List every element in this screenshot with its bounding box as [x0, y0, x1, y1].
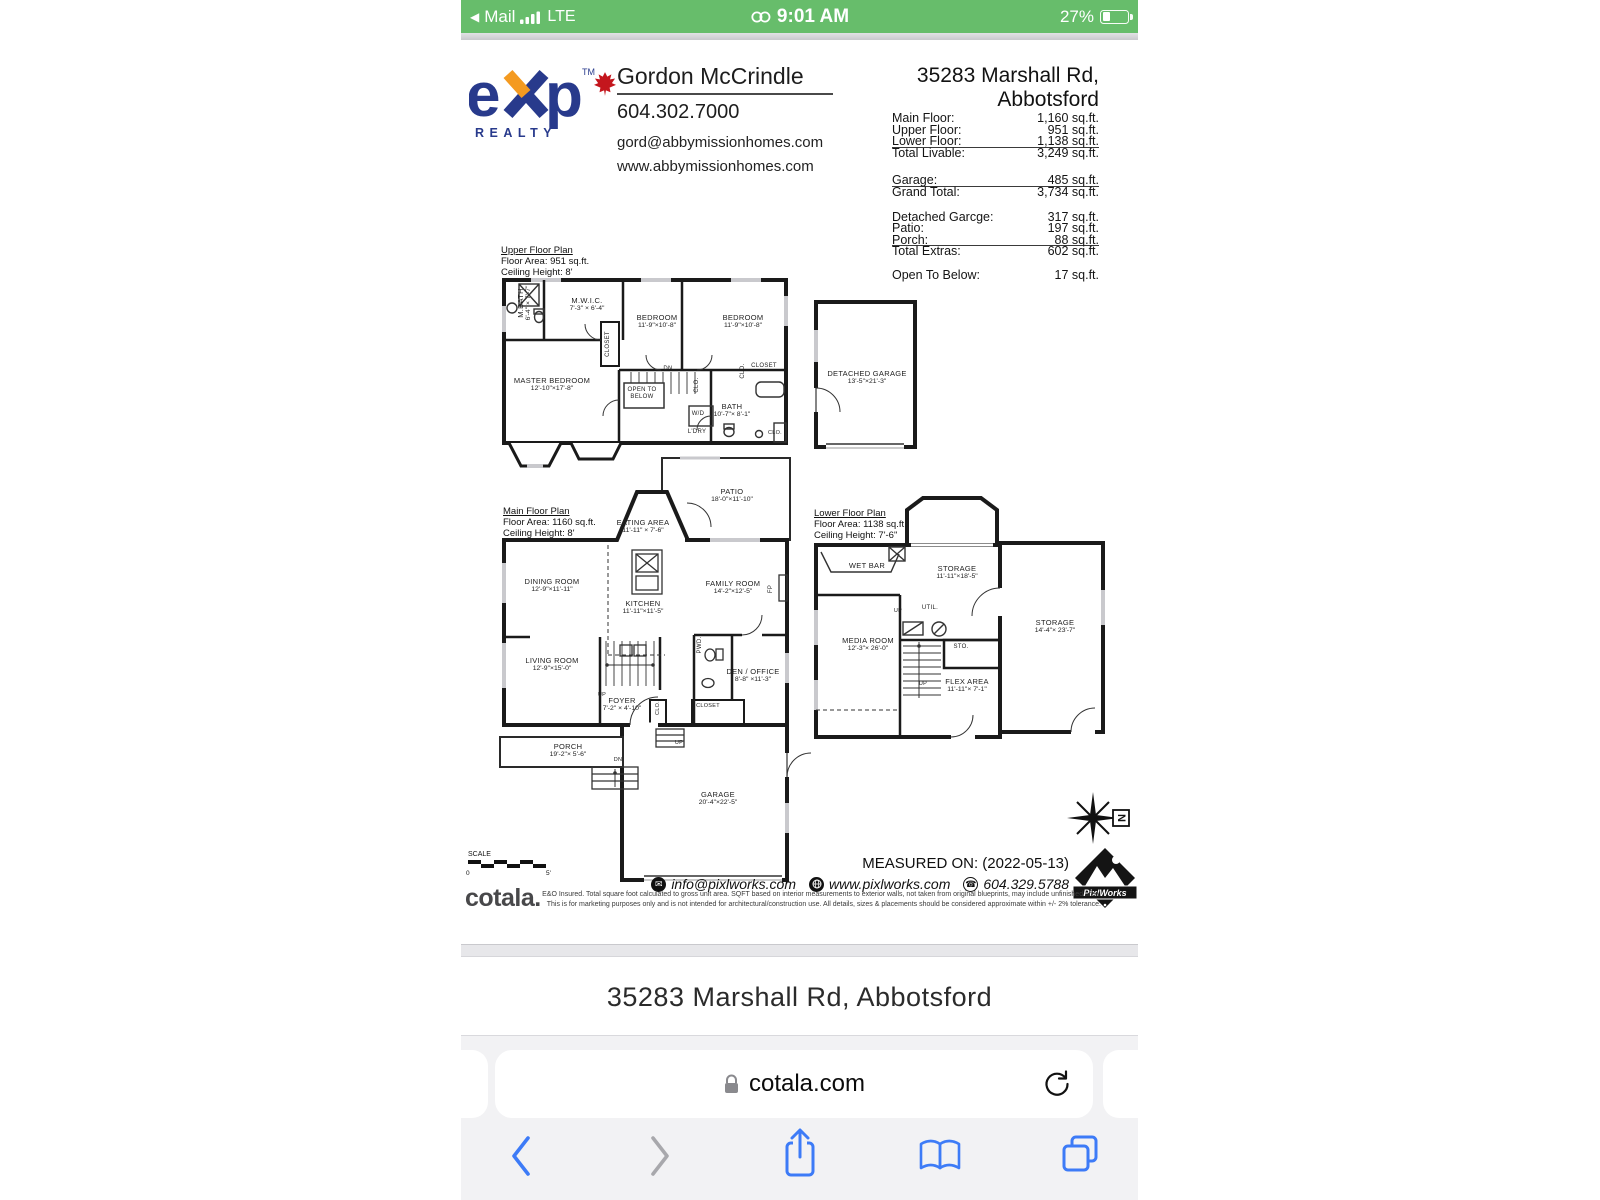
lock-icon [723, 1073, 740, 1095]
measured-on-date: MEASURED ON: (2022-05-13) [761, 855, 1069, 872]
previous-tab-edge[interactable] [461, 1050, 488, 1118]
forward-button[interactable] [642, 1133, 678, 1179]
page-title: 35283 Marshall Rd, Abbotsford [461, 982, 1138, 1013]
room-label: DEN / OFFICE8'-8" ×11'-3" [726, 667, 779, 683]
room-label: W/D [692, 411, 705, 417]
network-type-label: LTE [547, 8, 575, 26]
phone-screenshot: ◀ Mail LTE 9:01 AM 27% e p TM REALTY [461, 0, 1138, 1200]
table-row: Grand Total:3,734 sq.ft. [892, 187, 1099, 199]
personal-hotspot-icon [750, 10, 771, 24]
open-book-icon [917, 1138, 963, 1174]
room-label: UTIL. [922, 605, 938, 611]
disclaimer: E&O Insured. Total square foot calculate… [537, 890, 1101, 909]
room-label: UP [919, 681, 927, 687]
room-label: PWD. [697, 637, 703, 654]
reload-icon [1042, 1069, 1072, 1099]
svg-text:5': 5' [546, 870, 551, 876]
north-compass-icon: N [1061, 790, 1141, 846]
room-label: KITCHEN11'-11"×11'-5" [623, 599, 664, 615]
room-label: UP [894, 608, 902, 614]
tabs-icon [1060, 1133, 1100, 1175]
upper-plan-header: Upper Floor PlanFloor Area: 951 sq.ft.Ce… [501, 245, 589, 278]
room-label: MEDIA ROOM12'-3"× 26'-0" [842, 636, 894, 652]
room-label: PATIO18'-0"×11'-10" [711, 487, 753, 503]
back-to-app-icon: ◀ [470, 11, 479, 23]
back-to-app-label: Mail [484, 7, 515, 27]
room-label: CLO. [694, 377, 700, 392]
svg-text:0: 0 [466, 870, 470, 876]
page-bottom-strip [461, 944, 1138, 957]
next-tab-edge[interactable] [1103, 1050, 1138, 1118]
back-to-app-button[interactable]: ◀ Mail LTE [470, 7, 576, 27]
room-label: CLOSET [751, 363, 777, 369]
svg-text:p: p [545, 61, 583, 130]
room-label: OPEN TO BELOW [622, 387, 662, 401]
room-label: FLEX AREA11'-11"× 7'-1" [945, 677, 989, 693]
room-label: L'DRY [688, 429, 707, 435]
room-label: EATING AREA11'-11" × 7'-6" [617, 518, 670, 534]
area-table: Main Floor:1,160 sq.ft. Upper Floor:951 … [892, 113, 1099, 282]
maple-leaf-icon [594, 72, 616, 96]
room-label: DN [663, 366, 672, 372]
room-label: UP [675, 740, 683, 746]
svg-text:REALTY: REALTY [475, 126, 557, 140]
lower-floorplan-drawing [791, 440, 1111, 750]
agent-email: gord@abbymissionhomes.com [617, 134, 833, 151]
property-address: 35283 Marshall Rd, Abbotsford [781, 64, 1099, 112]
room-label: DINING ROOM12'-9"×11'-11" [525, 577, 580, 593]
room-label: FOYER7'-2" × 4'-10" [603, 696, 642, 712]
room-label: WET BAR [849, 561, 885, 570]
chevron-right-icon [645, 1134, 675, 1178]
room-label: FAMILY ROOM14'-2"×12'-5" [706, 579, 761, 595]
chevron-left-icon [506, 1134, 536, 1178]
tabs-button[interactable] [1059, 1132, 1101, 1176]
signal-bars-icon [520, 10, 542, 24]
svg-text:SCALE: SCALE [468, 851, 491, 858]
room-label: LIVING ROOM12'-9"×15'-0" [525, 656, 578, 672]
room-label: STORAGE14'-4"× 23'-7" [1035, 618, 1076, 634]
table-row: Total Extras:602 sq.ft. [892, 246, 1099, 258]
url-bar[interactable]: cotala.com [495, 1050, 1093, 1118]
room-label: FP [768, 585, 774, 593]
share-icon [779, 1125, 821, 1181]
room-label: DN [614, 757, 623, 763]
room-label: BEDROOM11'-9"×10'-8" [723, 313, 764, 329]
battery-status: 27% [1060, 7, 1129, 27]
page-top-strip [461, 33, 1138, 40]
battery-percent: 27% [1060, 7, 1094, 27]
room-label: DETACHED GARAGE13'-5"×21'-3" [827, 369, 906, 385]
room-label: BEDROOM11'-9"×10'-8" [637, 313, 678, 329]
battery-icon [1100, 10, 1129, 24]
table-row: Open To Below:17 sq.ft. [892, 270, 1099, 282]
cotala-logo: cotala. [465, 884, 541, 913]
bookmarks-button[interactable] [916, 1136, 964, 1176]
status-bar-center: 9:01 AM [750, 6, 849, 28]
reload-button[interactable] [1039, 1066, 1075, 1102]
status-bar: ◀ Mail LTE 9:01 AM 27% [461, 0, 1138, 33]
svg-text:e: e [469, 61, 500, 130]
room-label: BATH10'-7"× 8'-1" [714, 402, 751, 418]
room-label: M.BATH6'-4" × 7'-7" [516, 286, 532, 321]
room-label: STORAGE11'-11"×18'-5" [936, 564, 977, 580]
room-label: UP [598, 692, 606, 698]
share-button[interactable] [778, 1124, 822, 1182]
room-label: CLO. [655, 701, 661, 715]
room-label: GARAGE20'-4"×22'-5" [699, 790, 738, 806]
room-label: CLO. [768, 430, 782, 436]
room-label: CLOSET [605, 331, 611, 357]
scale-bar: SCALE 0 5' [466, 848, 558, 876]
room-label: STO. [953, 644, 968, 650]
room-label: CLO. [740, 363, 746, 378]
table-row: Total Livable:3,249 sq.ft. [892, 148, 1099, 160]
room-label: M.W.I.C.7'-3" × 6'-4" [570, 296, 605, 312]
room-label: CLOSET [696, 703, 720, 709]
room-label: MASTER BEDROOM12'-10"×17'-8" [514, 376, 590, 392]
svg-text:N: N [1115, 814, 1127, 822]
desktop-background: ◀ Mail LTE 9:01 AM 27% e p TM REALTY [0, 0, 1600, 1200]
room-label: PORCH19'-2"× 5'-6" [550, 742, 587, 758]
clock: 9:01 AM [777, 6, 849, 28]
url-host: cotala.com [749, 1070, 865, 1098]
agent-website: www.abbymissionhomes.com [617, 158, 833, 175]
back-button[interactable] [503, 1133, 539, 1179]
